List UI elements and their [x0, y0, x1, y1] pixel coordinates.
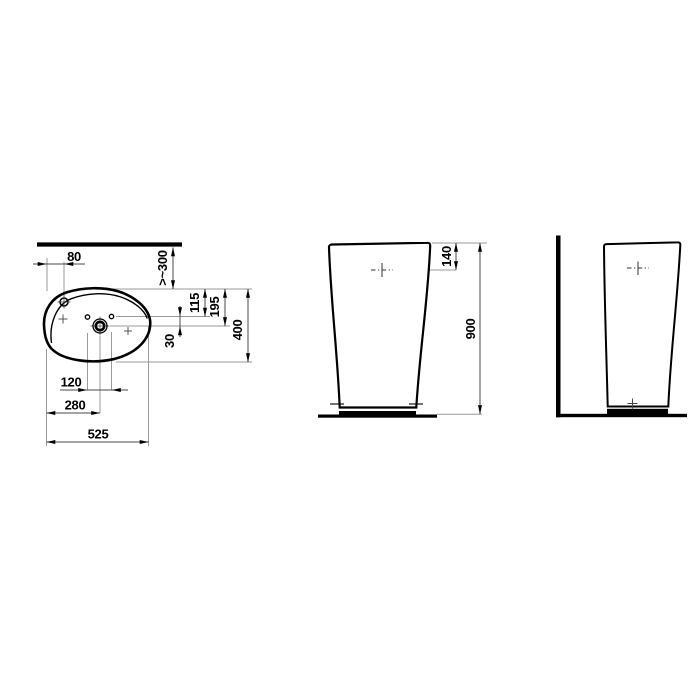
plan-cross-left [59, 315, 68, 324]
dim-label-30: 30 [162, 334, 177, 348]
plan-extension-lines [47, 258, 253, 446]
dim-label-400: 400 [230, 320, 245, 341]
side-wall-line [556, 236, 561, 418]
plan-side-hole-left [85, 315, 89, 319]
plan-basin-inner-rim [51, 294, 147, 343]
front-view: 140 900 [318, 243, 487, 418]
plan-cross-right [124, 327, 132, 335]
side-basin-outline [604, 242, 680, 406]
dim-label-min-300: >~300 [155, 250, 170, 285]
plan-tap-hole [58, 296, 71, 309]
dim-label-195: 195 [207, 297, 222, 318]
drawing-canvas: 80 >~300 115 195 30 400 120 280 525 [0, 0, 700, 700]
front-floor-line [318, 415, 437, 418]
dim-label-280: 280 [65, 398, 86, 413]
dim-label-80: 80 [67, 249, 81, 264]
dim-label-900: 900 [463, 319, 478, 340]
plan-view: 80 >~300 115 195 30 400 120 280 525 [33, 245, 252, 447]
plan-drain [91, 317, 110, 336]
side-floor-line [556, 414, 687, 417]
plan-side-hole-right [109, 314, 113, 318]
side-base-band [607, 409, 668, 414]
dim-label-525: 525 [88, 427, 109, 442]
dim-label-115: 115 [187, 293, 202, 313]
dim-label-120: 120 [61, 375, 82, 390]
technical-drawing: 80 >~300 115 195 30 400 120 280 525 [0, 0, 700, 700]
side-view [556, 236, 687, 418]
front-basin-outline [329, 243, 430, 408]
dim-label-140: 140 [439, 246, 454, 267]
